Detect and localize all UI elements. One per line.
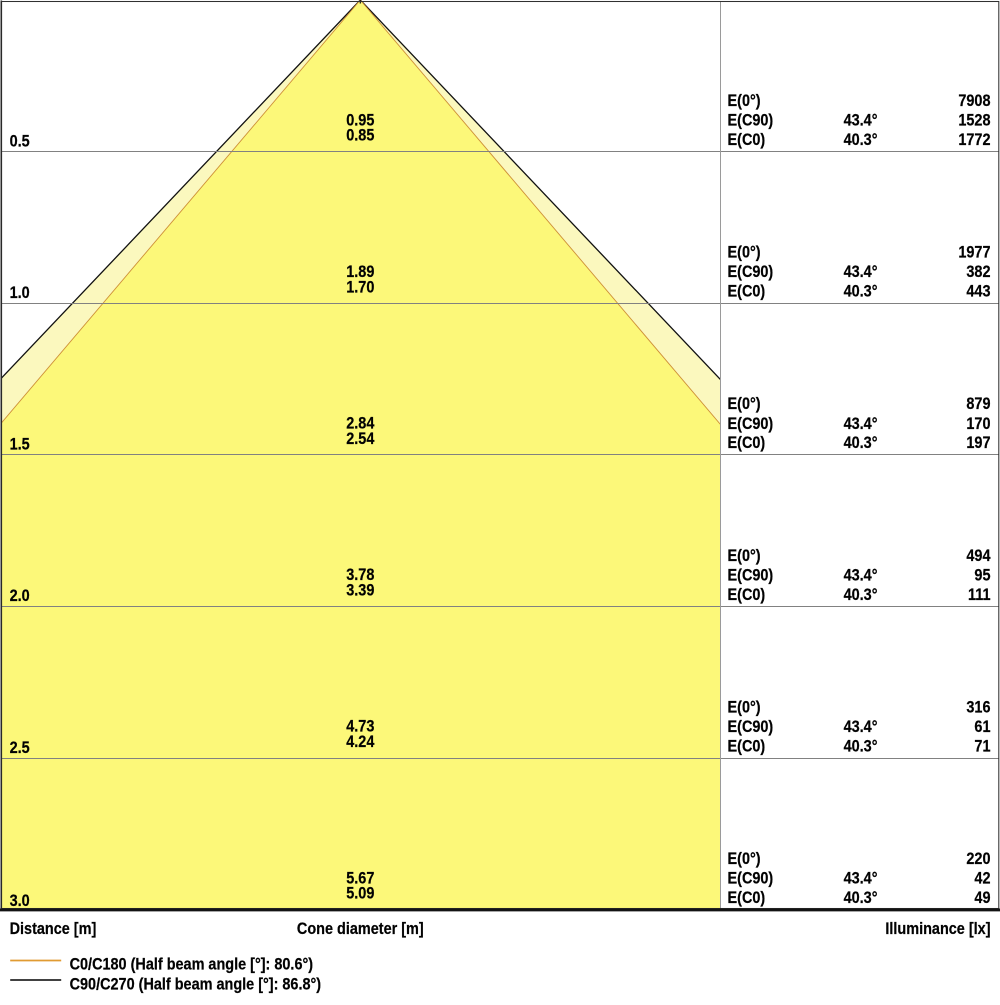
- svg-text:43.4°: 43.4°: [844, 566, 878, 584]
- svg-text:1.0: 1.0: [10, 284, 30, 302]
- svg-text:E(0°): E(0°): [728, 698, 761, 716]
- svg-text:1.5: 1.5: [10, 436, 30, 454]
- svg-text:43.4°: 43.4°: [844, 112, 878, 130]
- svg-text:E(0°): E(0°): [728, 395, 761, 413]
- svg-text:40.3°: 40.3°: [844, 737, 878, 755]
- svg-text:170: 170: [966, 415, 990, 433]
- svg-text:43.4°: 43.4°: [844, 718, 878, 736]
- svg-text:3.39: 3.39: [346, 581, 374, 599]
- svg-text:E(C0): E(C0): [728, 586, 766, 604]
- svg-text:43.4°: 43.4°: [844, 263, 878, 281]
- svg-text:5.09: 5.09: [346, 885, 374, 903]
- svg-text:E(C0): E(C0): [728, 889, 766, 907]
- svg-text:Illuminance [lx]: Illuminance [lx]: [885, 920, 990, 938]
- svg-text:71: 71: [974, 737, 990, 755]
- svg-text:2.5: 2.5: [10, 739, 30, 757]
- svg-text:61: 61: [974, 718, 990, 736]
- svg-text:E(C90): E(C90): [728, 566, 774, 584]
- svg-text:40.3°: 40.3°: [844, 434, 878, 452]
- svg-text:Cone diameter [m]: Cone diameter [m]: [297, 920, 424, 938]
- svg-text:E(C0): E(C0): [728, 434, 766, 452]
- svg-text:7908: 7908: [958, 92, 990, 110]
- svg-text:C0/C180 (Half beam angle [°]:: C0/C180 (Half beam angle [°]: 80.6°): [70, 955, 313, 973]
- svg-text:E(C90): E(C90): [728, 415, 774, 433]
- svg-text:40.3°: 40.3°: [844, 586, 878, 604]
- svg-text:2.54: 2.54: [346, 430, 374, 448]
- svg-text:443: 443: [966, 283, 990, 301]
- svg-text:E(0°): E(0°): [728, 547, 761, 565]
- svg-text:E(C90): E(C90): [728, 870, 774, 888]
- svg-text:40.3°: 40.3°: [844, 283, 878, 301]
- svg-text:197: 197: [966, 434, 990, 452]
- svg-text:E(C90): E(C90): [728, 718, 774, 736]
- svg-text:494: 494: [966, 547, 990, 565]
- svg-text:316: 316: [966, 698, 990, 716]
- svg-text:2.0: 2.0: [10, 587, 30, 605]
- svg-text:43.4°: 43.4°: [844, 415, 878, 433]
- svg-text:1772: 1772: [958, 131, 990, 149]
- svg-text:4.24: 4.24: [346, 733, 374, 751]
- svg-text:E(C0): E(C0): [728, 131, 766, 149]
- svg-text:0.85: 0.85: [346, 127, 374, 145]
- svg-text:1.70: 1.70: [346, 278, 374, 296]
- svg-text:382: 382: [966, 263, 990, 281]
- svg-text:1528: 1528: [958, 112, 990, 130]
- svg-text:43.4°: 43.4°: [844, 870, 878, 888]
- svg-text:49: 49: [974, 889, 990, 907]
- svg-text:40.3°: 40.3°: [844, 889, 878, 907]
- svg-text:E(0°): E(0°): [728, 92, 761, 110]
- svg-text:C90/C270 (Half beam angle [°]:: C90/C270 (Half beam angle [°]: 86.8°): [70, 975, 322, 993]
- svg-text:40.3°: 40.3°: [844, 131, 878, 149]
- svg-text:220: 220: [966, 850, 990, 868]
- svg-text:E(C0): E(C0): [728, 283, 766, 301]
- svg-text:E(0°): E(0°): [728, 850, 761, 868]
- svg-text:E(C90): E(C90): [728, 263, 774, 281]
- svg-text:0.5: 0.5: [10, 132, 30, 150]
- svg-text:E(0°): E(0°): [728, 244, 761, 262]
- svg-text:Distance [m]: Distance [m]: [10, 920, 97, 938]
- svg-text:111: 111: [968, 586, 991, 604]
- svg-text:1977: 1977: [958, 244, 990, 262]
- svg-text:E(C0): E(C0): [728, 737, 766, 755]
- svg-text:42: 42: [974, 870, 990, 888]
- svg-text:E(C90): E(C90): [728, 112, 774, 130]
- svg-text:95: 95: [974, 566, 990, 584]
- svg-text:3.0: 3.0: [10, 892, 30, 910]
- svg-text:879: 879: [966, 395, 990, 413]
